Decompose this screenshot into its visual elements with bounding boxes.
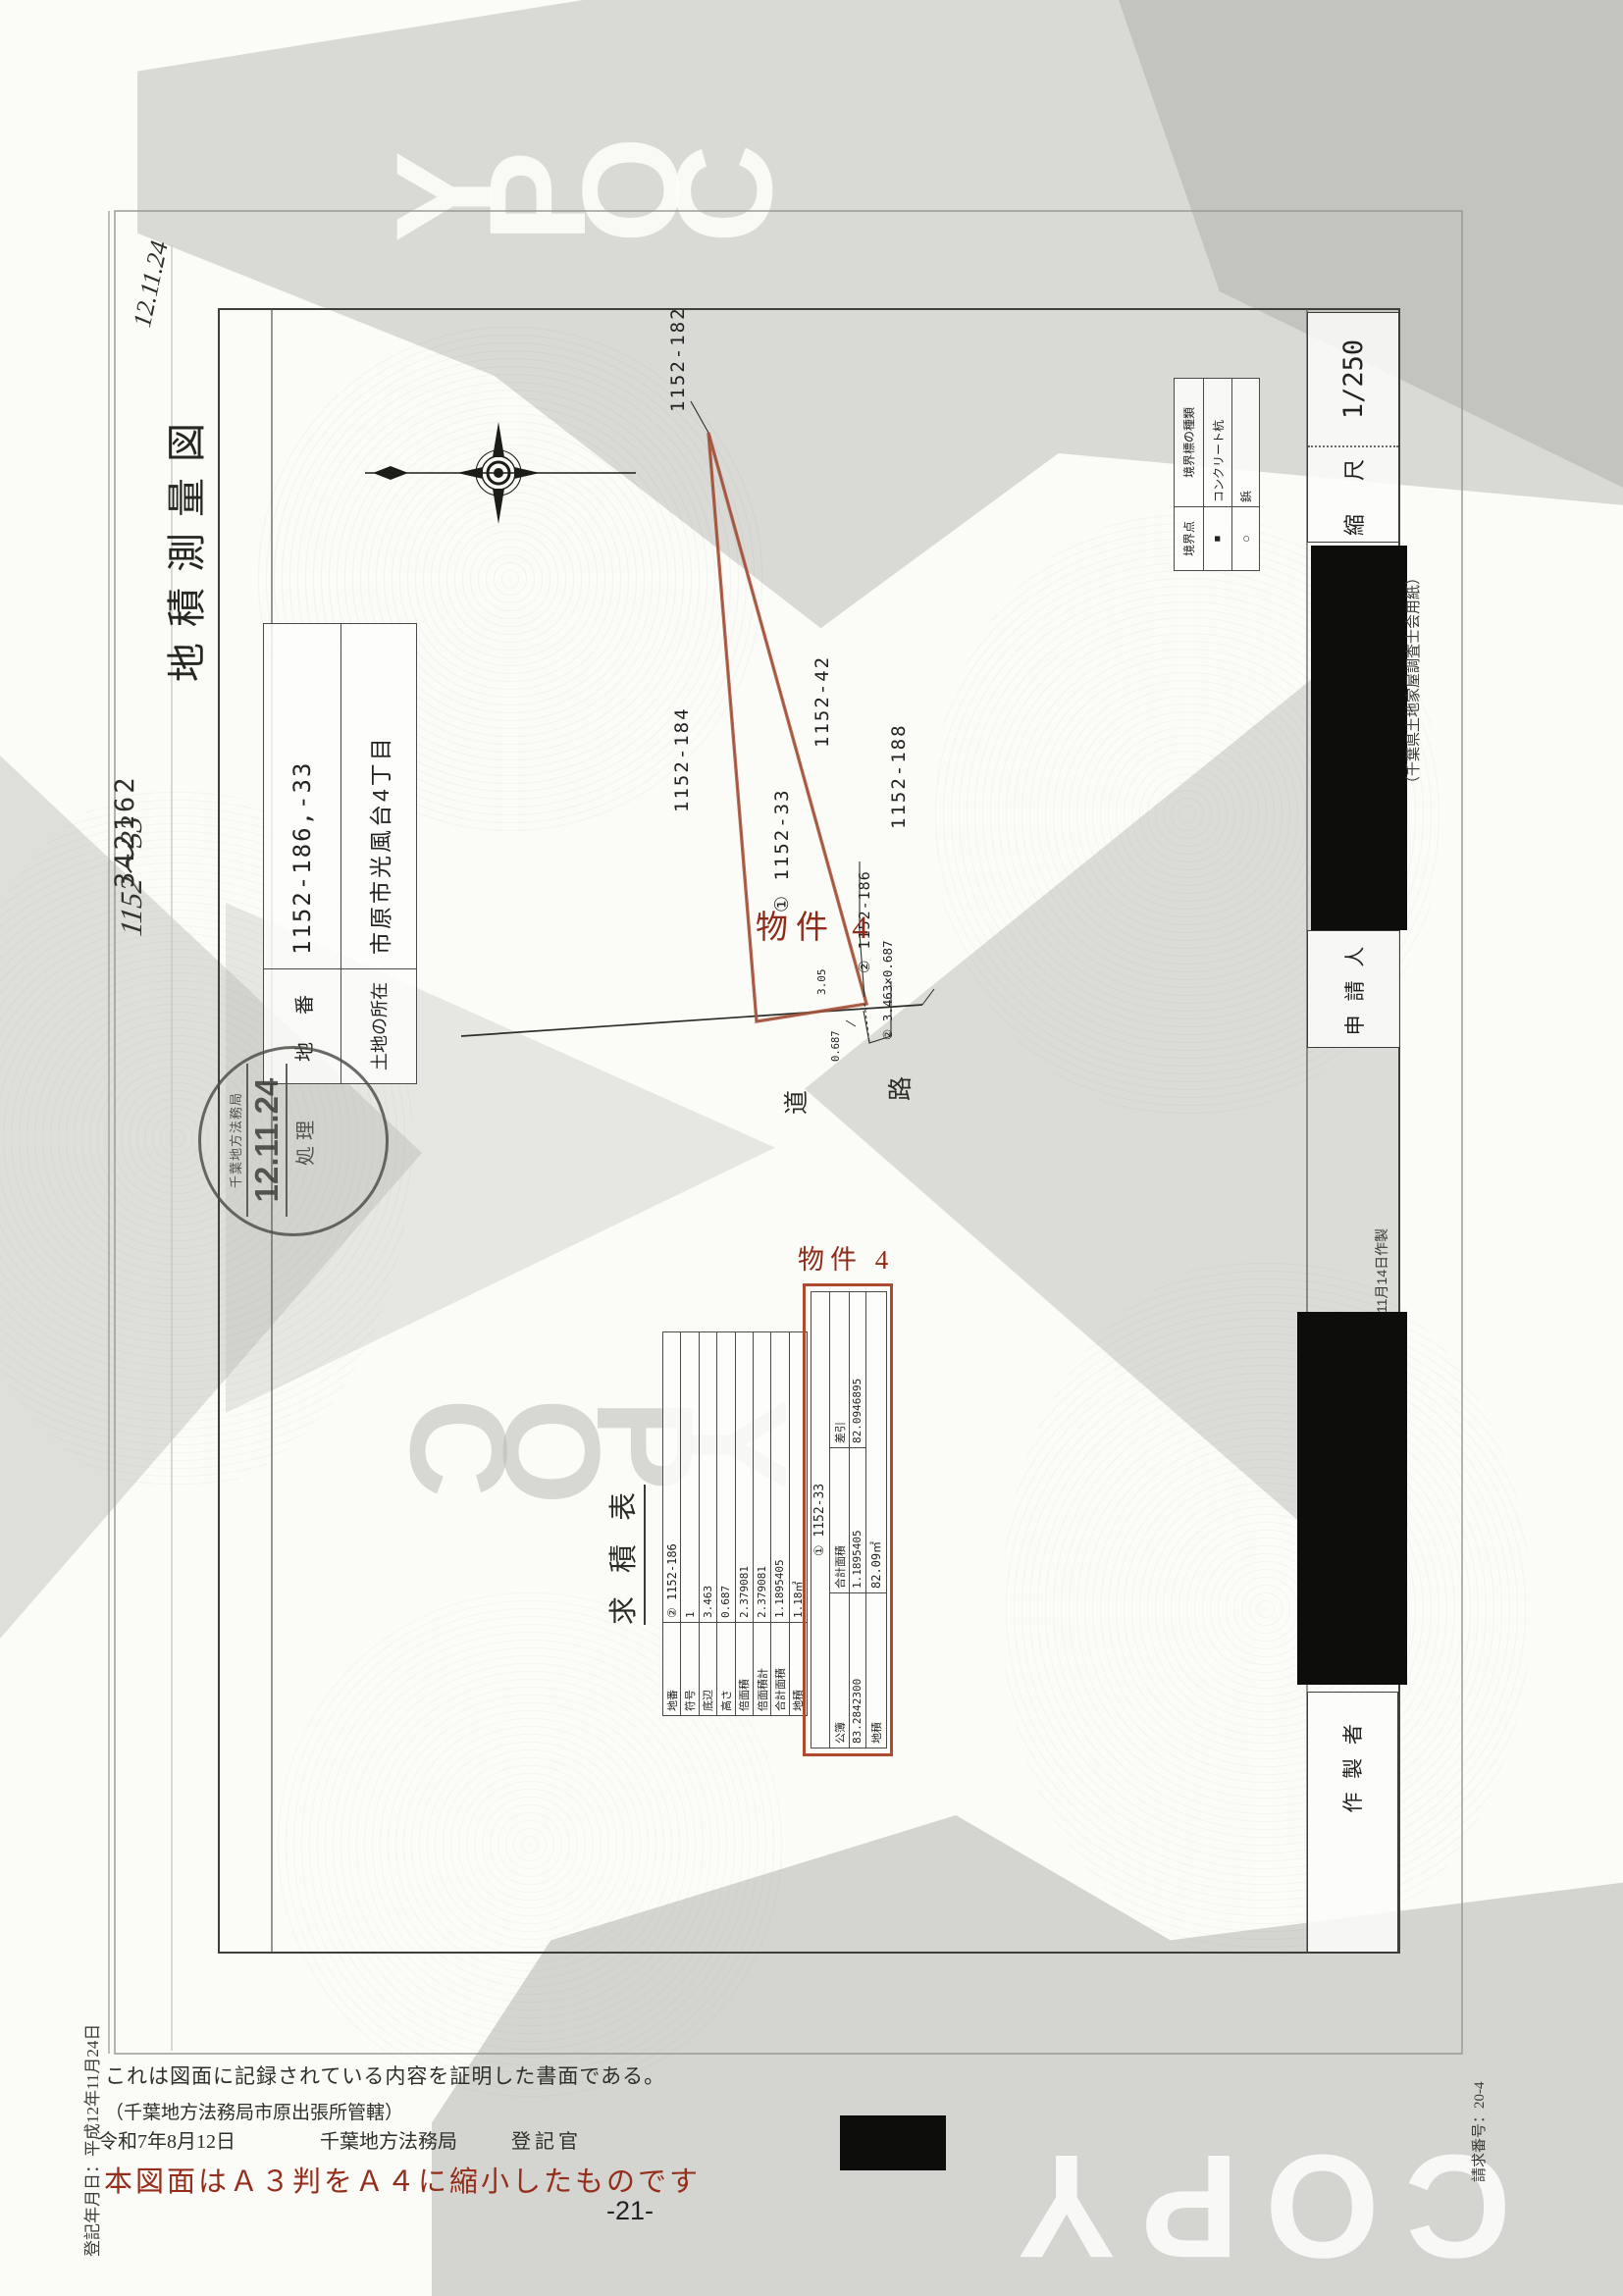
area-table-caption: 求 積 表 xyxy=(601,1511,655,1625)
road-label-char1: 道 xyxy=(777,1083,812,1115)
redaction-box-preparer xyxy=(1297,1312,1407,1685)
lot-location-table: 地 番 1152-186,-33 土地の所在 市原市光風台4丁目 xyxy=(263,623,417,1084)
parcel-label-1152-33: ① 1152-33 xyxy=(771,718,793,913)
compass-rose-icon xyxy=(365,422,636,524)
col-label: 合計面積 xyxy=(829,1448,849,1593)
jurisdiction-note: （千葉地方法務局市原出張所管轄） xyxy=(105,2098,403,2124)
issue-line: 令和7年8月12日 千葉地方法務局 xyxy=(98,2125,457,2154)
row-label: 底辺 xyxy=(699,1623,716,1716)
applicant-box: 申 請 人 xyxy=(1307,930,1400,1048)
made-date-note: 11月14日作製 xyxy=(1372,1119,1391,1313)
row-value: 1 xyxy=(681,1332,699,1623)
paper-note: （千葉県土地家屋調査士会用紙） xyxy=(1402,316,1423,791)
legend-symbol: ○ xyxy=(1232,507,1260,571)
lot-value: 1152-186,-33 xyxy=(264,624,341,969)
issue-date: 令和7年8月12日 xyxy=(98,2125,236,2154)
scale-value: 1/250 xyxy=(1308,313,1398,447)
legend-kind: コンクリート杭 xyxy=(1204,379,1232,507)
stamp-office: 千葉地方法務局 xyxy=(226,1058,244,1223)
cert-statement: これは図面に記録されている内容を証明した書面である。 xyxy=(105,2061,665,2090)
area-table-1152-186: 地番② 1152-186 符号1 底辺3.463 高さ0.687 倍面積2.37… xyxy=(662,1331,808,1716)
stamp-date: 12.11.24 xyxy=(246,1064,288,1217)
legend-kind: 鋲 xyxy=(1232,379,1260,507)
row-label: 高さ xyxy=(717,1623,735,1716)
row-label: 倍面積 xyxy=(735,1623,753,1716)
registered-date-note: 登記年月日：平成12年11月24日 xyxy=(79,1852,103,2257)
preparer-box: 作 製 者 xyxy=(1307,1692,1398,1953)
scale-box: 縮 尺 1/250 xyxy=(1307,312,1399,543)
row-label: 倍面積計 xyxy=(753,1623,770,1716)
parcel-label-1152-184: 1152-184 xyxy=(671,693,693,812)
document-number: 342162 xyxy=(110,741,140,888)
road-edge-line xyxy=(461,1005,922,1036)
applicant-label: 申 請 人 xyxy=(1339,943,1369,1036)
row-value: 1.1895405 xyxy=(771,1332,789,1623)
area-table-1152-33: ① 1152-33 公簿 合計面積 差引 83.2842300 1.189540… xyxy=(811,1291,887,1748)
dimension-3-05: 3.05 xyxy=(815,948,828,995)
parcel-label-1152-182: 1152-182 xyxy=(667,237,689,412)
dimension-0-687: 0.687 xyxy=(830,1005,842,1062)
row-value: 2.379081 xyxy=(735,1332,753,1623)
legend-symbol: ■ xyxy=(1204,507,1232,571)
legend-point-header: 境界点 xyxy=(1175,507,1204,571)
property-tag-table: 物件 4 xyxy=(798,1238,894,1277)
area-label: 地積 xyxy=(865,1593,886,1748)
parcel-label-1152-188: 1152-188 xyxy=(888,709,910,829)
col-value: 83.2842300 xyxy=(850,1593,866,1748)
col-value: 82.0946895 xyxy=(850,1292,866,1448)
officer-label: 登記官 xyxy=(511,2125,582,2154)
reduction-note: 本図面はＡ３判をＡ４に縮小したものです xyxy=(104,2159,701,2200)
survey-title: 地積測量図 xyxy=(155,378,216,682)
table-header-lot: ① 1152-33 xyxy=(811,1292,830,1748)
col-value: 1.1895405 xyxy=(850,1448,866,1593)
redaction-box-officer-seal xyxy=(840,2115,946,2170)
col-label: 差引 xyxy=(829,1292,849,1448)
parcel-label-1152-42: 1152-42 xyxy=(811,628,833,748)
issue-office: 千葉地方法務局 xyxy=(320,2125,457,2154)
receipt-stamp-text: 千葉地方法務局 12.11.24 処理 xyxy=(208,1058,373,1223)
row-value: 2.379081 xyxy=(753,1332,770,1623)
row-label: 地番 xyxy=(663,1623,681,1716)
redaction-box-applicant xyxy=(1311,546,1407,930)
row-value: ② 1152-186 xyxy=(663,1332,681,1623)
row-label: 符号 xyxy=(681,1623,699,1716)
scale-label: 縮 尺 xyxy=(1308,447,1398,542)
location-value: 市原市光風台4丁目 xyxy=(341,624,417,969)
page-number: -21- xyxy=(606,2196,654,2226)
scanned-survey-document: YPOC COPY COPY xyxy=(0,0,1623,2296)
row-value: 0.687 xyxy=(717,1332,735,1623)
col-label: 公簿 xyxy=(829,1593,849,1748)
legend-table: 境界点 境界標の種類 ■ コンクリート杭 ○ 鋲 xyxy=(1174,378,1260,571)
area-value: 82.09㎡ xyxy=(865,1292,886,1593)
preparer-label: 作 製 者 xyxy=(1342,1720,1365,1813)
request-number: 請求番号：20-4 xyxy=(1468,2033,1489,2182)
stamp-word: 処理 xyxy=(289,1058,318,1223)
strip-dimension-note: ② 3.463×0.687 xyxy=(880,881,895,1040)
road-label-char2: 路 xyxy=(881,1070,916,1101)
legend-kind-header: 境界標の種類 xyxy=(1175,379,1204,507)
property-tag-map: 物件 4 xyxy=(756,901,876,948)
row-value: 3.463 xyxy=(699,1332,716,1623)
row-label: 合計面積 xyxy=(771,1623,789,1716)
